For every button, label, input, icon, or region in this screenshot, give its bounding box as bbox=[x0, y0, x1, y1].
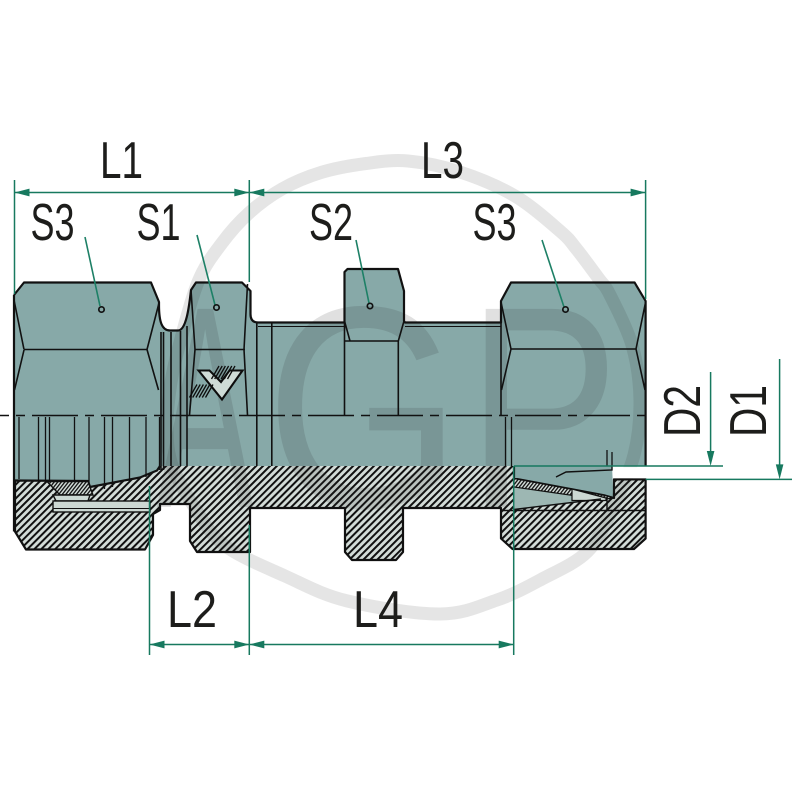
svg-text:S1: S1 bbox=[137, 194, 181, 252]
svg-text:D2: D2 bbox=[654, 385, 712, 437]
svg-text:L1: L1 bbox=[100, 132, 143, 190]
svg-text:P: P bbox=[467, 247, 619, 569]
svg-text:L2: L2 bbox=[167, 581, 217, 639]
svg-text:S2: S2 bbox=[309, 194, 353, 252]
svg-text:L3: L3 bbox=[421, 132, 464, 190]
svg-text:S3: S3 bbox=[31, 194, 75, 252]
svg-text:L4: L4 bbox=[353, 581, 403, 639]
svg-text:S3: S3 bbox=[473, 194, 517, 252]
svg-text:G: G bbox=[266, 247, 462, 569]
svg-text:D1: D1 bbox=[720, 385, 778, 437]
